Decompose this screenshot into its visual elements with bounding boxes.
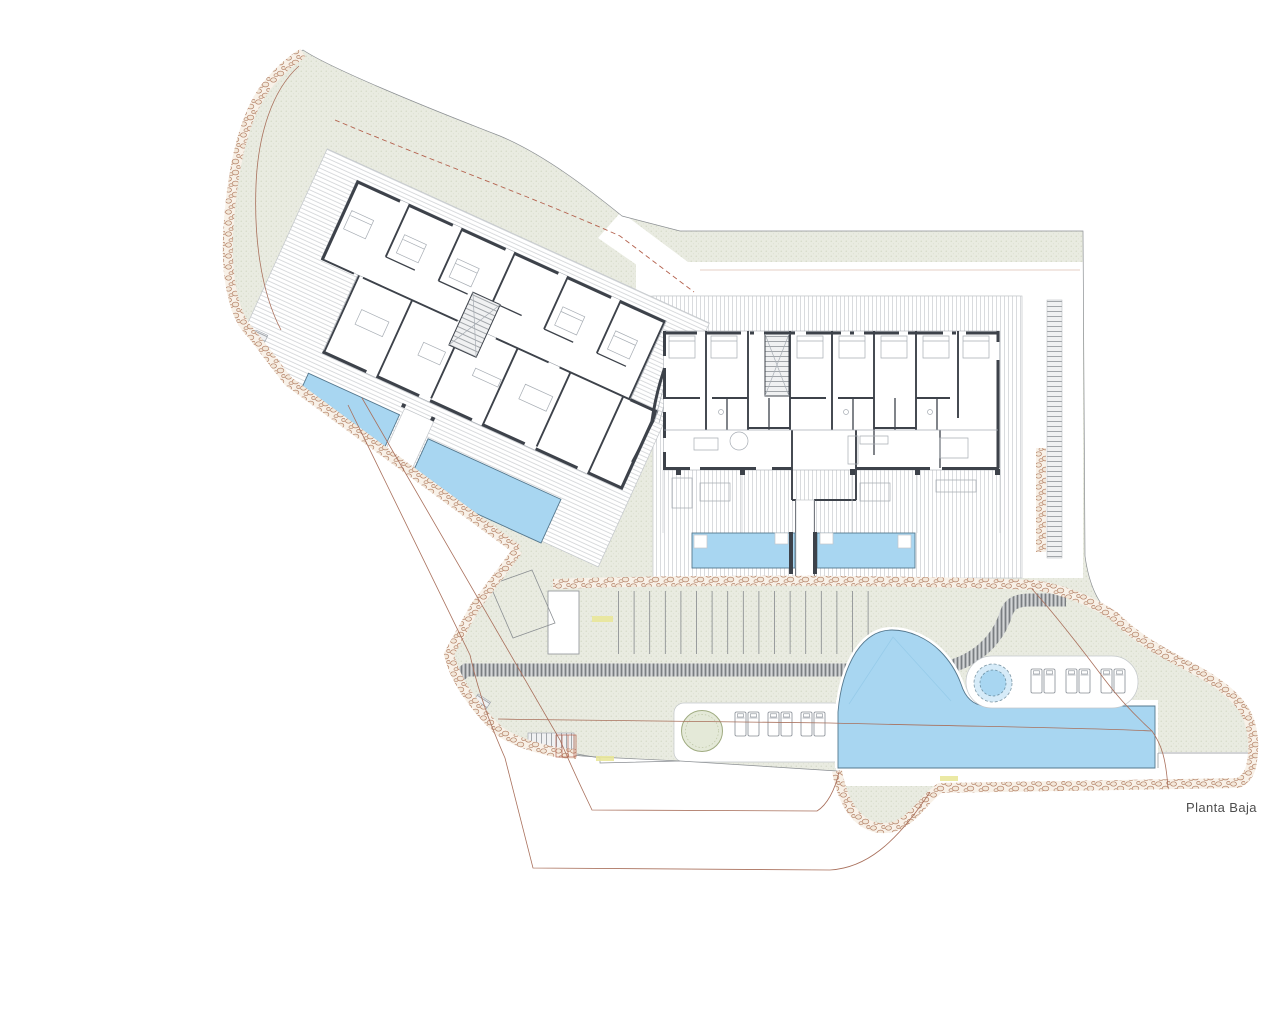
site-plan: Planta Baja (0, 0, 1280, 1024)
planter-circle (682, 711, 723, 752)
level-mark-2 (596, 756, 614, 761)
site-ground (180, 30, 1280, 840)
level-mark-3 (940, 776, 958, 781)
level-mark-1 (592, 616, 613, 622)
stairs-east-band (1047, 300, 1062, 558)
floor-label: Planta Baja (1186, 800, 1257, 815)
path-north (636, 262, 1083, 296)
parking-end-bay (548, 591, 579, 654)
pool-walkway-east (796, 500, 814, 578)
